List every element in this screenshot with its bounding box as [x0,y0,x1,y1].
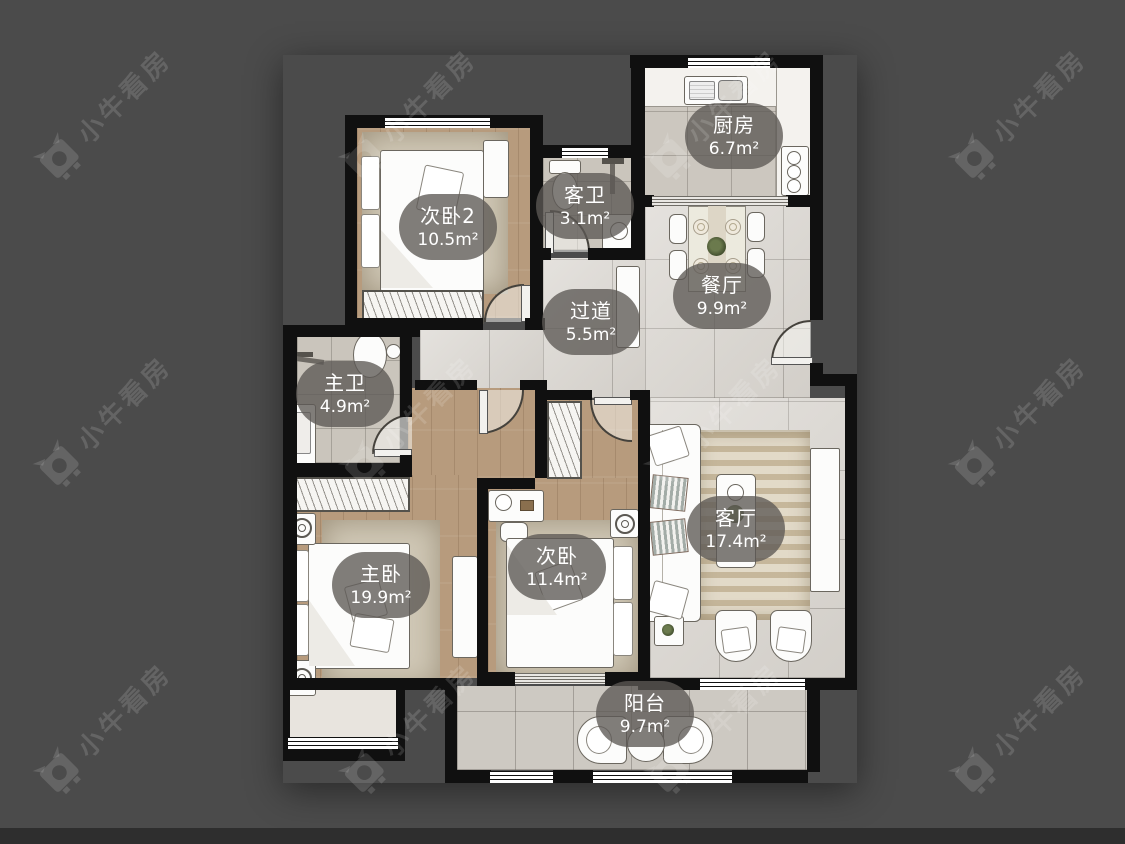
room-name: 过道 [560,298,622,324]
wall [477,478,488,684]
room-area: 19.9m² [350,587,412,609]
room-area: 3.1m² [554,208,616,230]
room-area: 4.9m² [314,396,376,418]
wall [553,770,593,783]
wall [805,678,857,690]
wall [810,55,823,320]
room-area: 9.9m² [691,298,753,320]
desk-accessory [520,500,534,511]
cushion [349,613,394,653]
watermark: 小牛看房 [945,652,1096,803]
room-name: 次卧 [526,543,588,569]
burner-icon [787,151,801,165]
watermark-text: 小牛看房 [983,39,1094,150]
pillow [613,602,633,656]
room-area: 6.7m² [703,138,765,160]
room-name: 次卧2 [417,203,479,229]
room-label-dining: 餐厅 9.9m² [673,263,771,329]
window [593,771,732,783]
wall [546,390,592,400]
room-name: 主卧 [350,561,412,587]
striped-cushion [649,474,688,512]
watermark-text: 小牛看房 [68,653,179,764]
wall [845,386,857,690]
watermark-text: 小牛看房 [68,39,179,150]
mirror-icon [495,494,512,511]
sink-drainboard [689,81,715,100]
xiaoniu-bull-icon [30,129,89,188]
kitchen-sliding-door [652,196,788,206]
bay-window [288,737,398,750]
armchair-cushion [775,626,806,654]
room-name: 餐厅 [691,272,753,298]
wall [543,248,551,260]
watermark: 小牛看房 [945,38,1096,189]
window [688,57,770,68]
window [700,678,805,690]
pillow [613,546,633,600]
wall [588,248,645,260]
tv-cabinet [810,448,840,592]
xiaoniu-bull-icon [30,743,89,802]
pillow [361,156,380,210]
wall [810,374,857,386]
wall [283,678,457,690]
image-bottom-strip [0,828,1125,844]
dining-chair [747,212,765,242]
watermark: 小牛看房 [30,38,181,189]
xiaoniu-bull-icon [945,129,1004,188]
room-label-kitchen: 厨房 6.7m² [685,103,783,169]
wall [638,390,650,686]
toilet-flush-icon [386,344,401,359]
entry-door-leaf [771,357,813,365]
wall [283,325,297,690]
burner-icon [787,165,801,179]
room-label-master-bath: 主卫 4.9m² [296,361,394,427]
watermark: 小牛看房 [30,652,181,803]
room-label-living: 客厅 17.4m² [687,496,785,562]
room-name: 厨房 [703,112,765,138]
armchair-cushion [720,626,751,654]
room-name: 客厅 [705,505,767,531]
room-label-guest-bath: 客卫 3.1m² [536,173,634,239]
balcony-sliding-door [515,673,605,684]
wall [477,672,515,686]
burner-icon [787,179,801,193]
wall [400,337,412,417]
room-label-bedroom2: 次卧2 10.5m² [399,194,497,260]
window [562,147,608,158]
room-area: 11.4m² [526,569,588,591]
window [385,117,490,128]
bedroom2-side-table [483,140,509,198]
wall [535,390,547,478]
corridor-door-leaf [479,390,488,434]
wall [283,463,412,477]
room-area: 10.5m² [417,229,479,251]
room-label-master-bedroom: 主卧 19.9m² [332,552,430,618]
xiaoniu-bull-icon [945,743,1004,802]
wall [345,115,357,330]
place-setting [725,219,741,235]
wall [786,195,810,207]
wall [283,325,420,337]
floorplan-image: 次卧2 10.5m² 客卫 3.1m² 厨房 6.7m² 过道 5.5m² 餐厅… [0,0,1125,844]
table-plant [707,237,726,256]
room-name: 阳台 [614,690,676,716]
wall [732,770,808,783]
room-label-bedroom: 次卧 11.4m² [508,534,606,600]
sink-basin [718,80,743,101]
floor-bay-window [290,690,396,737]
room-area: 5.5m² [560,324,622,346]
side-table-flower [662,624,674,636]
room-name: 客卫 [554,182,616,208]
watermark: 小牛看房 [30,345,181,496]
pillow [361,214,380,268]
wall [415,380,477,390]
room-label-hallway: 过道 5.5m² [542,289,640,355]
room-label-balcony: 阳台 9.7m² [596,681,694,747]
xiaoniu-bull-icon [30,436,89,495]
wall [807,690,820,772]
dining-chair [669,214,687,244]
bedroom-wardrobe [547,401,582,479]
striped-cushion [649,518,688,556]
wall [520,380,547,390]
watermark-text: 小牛看房 [983,653,1094,764]
watermark-text: 小牛看房 [983,346,1094,457]
room-area: 9.7m² [614,716,676,738]
lamp-icon [615,514,635,534]
place-setting [693,219,709,235]
xiaoniu-bull-icon [945,436,1004,495]
room-area: 17.4m² [705,531,767,553]
bedroom-door-leaf [594,397,632,405]
watermark: 小牛看房 [945,345,1096,496]
room-name: 主卫 [314,370,376,396]
wall [445,770,491,783]
watermark-text: 小牛看房 [68,346,179,457]
window [490,771,553,783]
master-dresser [452,556,478,658]
master-wardrobe [292,477,410,512]
wall [445,678,457,775]
